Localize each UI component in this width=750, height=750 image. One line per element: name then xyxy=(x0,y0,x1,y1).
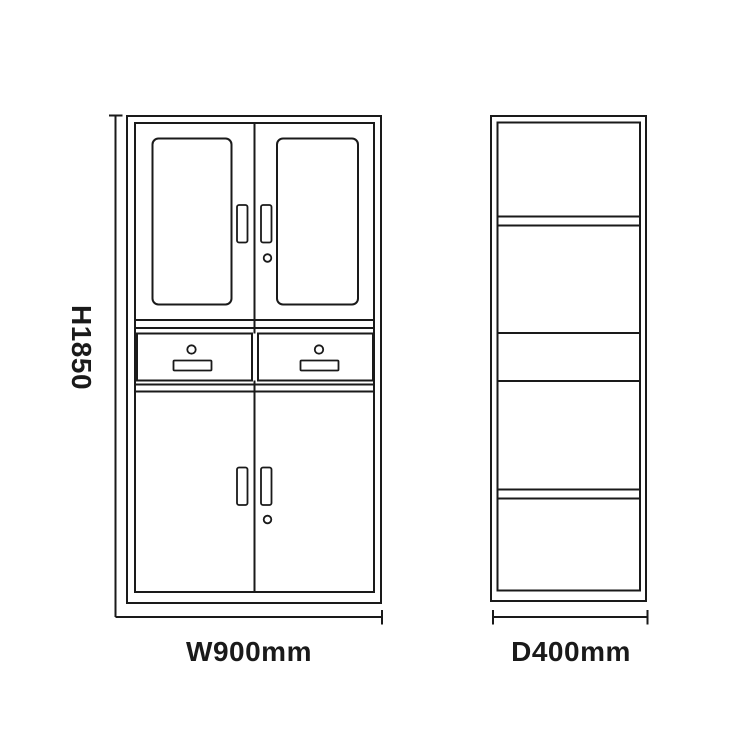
lower-keyhole-icon xyxy=(264,516,272,524)
drawer-right-handle xyxy=(301,361,339,371)
front-view xyxy=(127,116,381,603)
cabinet-dimension-drawing: H1850 W900mm D400mm xyxy=(0,0,750,750)
drawer-right xyxy=(258,334,373,381)
upper-keyhole-icon xyxy=(264,254,272,262)
dimension-drawing-canvas: H1850 W900mm D400mm xyxy=(0,0,750,750)
upper-door-handle-left xyxy=(237,205,248,243)
width-dimension-label: W900mm xyxy=(186,636,312,667)
drawer-left-lock-icon xyxy=(187,345,195,353)
side-outer-frame xyxy=(491,116,646,601)
depth-dimension-label: D400mm xyxy=(511,636,631,667)
side-view xyxy=(491,116,646,601)
glass-window-left xyxy=(153,139,232,305)
drawer-right-lock-icon xyxy=(315,345,323,353)
side-inner-frame xyxy=(498,123,641,591)
lower-door-handle-right xyxy=(261,468,272,506)
upper-door-handle-right xyxy=(261,205,272,243)
drawer-left xyxy=(137,334,252,381)
drawer-left-handle xyxy=(174,361,212,371)
height-dimension-label: H1850 xyxy=(66,305,97,390)
lower-door-handle-left xyxy=(237,468,248,506)
glass-window-right xyxy=(277,139,358,305)
dimension-labels: H1850 W900mm D400mm xyxy=(66,305,631,667)
